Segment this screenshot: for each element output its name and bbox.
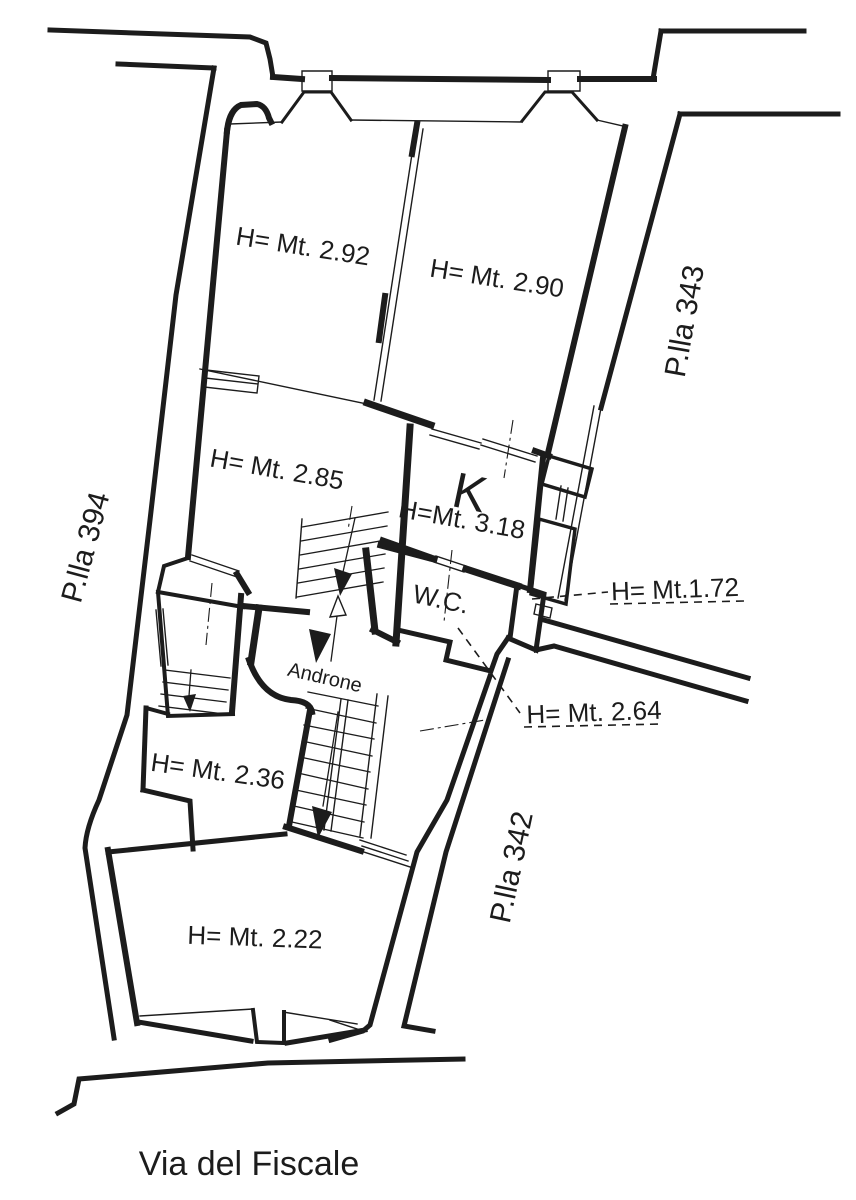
boundary-window-band: [558, 406, 601, 600]
boundary-right-street-wall: [536, 620, 748, 701]
label-room-236: H= Mt. 2.36: [149, 747, 287, 796]
centerline-small-room: [206, 583, 212, 645]
wall-285-to-small-room: [158, 558, 188, 592]
label-room-285: H= Mt. 2.85: [208, 443, 346, 496]
partition-292-290: [374, 128, 423, 401]
opening-rect-right: [548, 71, 580, 91]
wall-corridor-left: [251, 608, 259, 662]
line-222-bottom-inner: [140, 1009, 357, 1024]
label-room-292: H= Mt. 2.92: [234, 221, 372, 272]
label-niche-172: H= Mt.1.72: [611, 572, 740, 606]
wall-222-left: [108, 850, 137, 1023]
wall-236-left: [143, 708, 146, 790]
wall-kitchen-left: [396, 427, 410, 643]
label-parcel-342: P.lla 342: [484, 809, 540, 926]
wall-236-step: [143, 790, 193, 849]
label-wc: W.C.: [410, 579, 471, 620]
androne-down-arrow-icon: [309, 629, 331, 663]
floor-plan-page: H= Mt. 2.92 H= Mt. 2.90 H= Mt. 2.85 K H=…: [0, 0, 856, 1200]
stair-window-band: [360, 840, 410, 867]
stair-rail-outer: [360, 694, 388, 838]
boundary-top-right: [653, 31, 804, 79]
opening-rect-left: [302, 71, 332, 91]
thin-partition-lines: [140, 71, 623, 1030]
wall-222-top: [108, 834, 285, 852]
bay-window-left: [282, 92, 351, 122]
floor-plan-drawing: H= Mt. 2.92 H= Mt. 2.90 H= Mt. 2.85 K H=…: [0, 0, 856, 1200]
boundary-left-parcel-394: [85, 68, 214, 1038]
boundary-street-bottom: [58, 1059, 463, 1113]
label-parcel-343: P.lla 343: [659, 263, 711, 380]
wall-corridor-top: [243, 606, 307, 612]
wall-222-notch: [253, 1010, 284, 1043]
label-room-222: H= Mt. 2.22: [187, 920, 323, 955]
site-boundary-lines: [50, 30, 838, 1113]
wall-285-corner: [237, 574, 248, 592]
label-street-name: Via del Fiscale: [139, 1145, 360, 1183]
labels: H= Mt. 2.92 H= Mt. 2.90 H= Mt. 2.85 K H=…: [55, 221, 739, 1183]
window-285-bottom: [190, 555, 239, 577]
bay-window-right: [522, 92, 597, 121]
wall-small-room-right: [232, 596, 241, 712]
wall-small-room-left-link: [146, 708, 168, 714]
androne-up-arrow-icon: [330, 596, 346, 617]
wall-wc-bottom-niche: [398, 630, 508, 671]
label-niche-264: H= Mt. 2.64: [526, 695, 662, 730]
label-room-290: H= Mt. 2.90: [428, 253, 566, 304]
boundary-right-parcel-343: [601, 114, 838, 408]
boundary-top-left: [50, 30, 273, 77]
main-flight-treads: [292, 692, 378, 838]
centerline-window-290: [504, 420, 513, 478]
wall-top: [273, 77, 654, 80]
wall-top-left-bump: [227, 104, 271, 131]
window-290-kitchen: [430, 429, 481, 449]
upper-flight-down-arrow-icon: [334, 568, 352, 596]
label-androne: Androne: [285, 659, 364, 697]
boundary-top-left-2: [118, 64, 214, 68]
mini-flight-treads: [159, 670, 230, 714]
label-parcel-394: P.lla 394: [55, 488, 116, 606]
wall-corridor-right: [366, 551, 375, 631]
wall-small-room-outline: [158, 592, 233, 716]
line-top-inner: [230, 120, 623, 126]
upper-flight-border: [296, 519, 302, 598]
wall-small-room-top: [158, 592, 243, 607]
window-292-285: [204, 370, 259, 393]
door-band-kitchen: [481, 439, 537, 462]
divider-292-285: [200, 369, 367, 404]
wall-285-kitchen: [367, 403, 431, 425]
wall-parcel342-inner: [331, 676, 490, 1040]
